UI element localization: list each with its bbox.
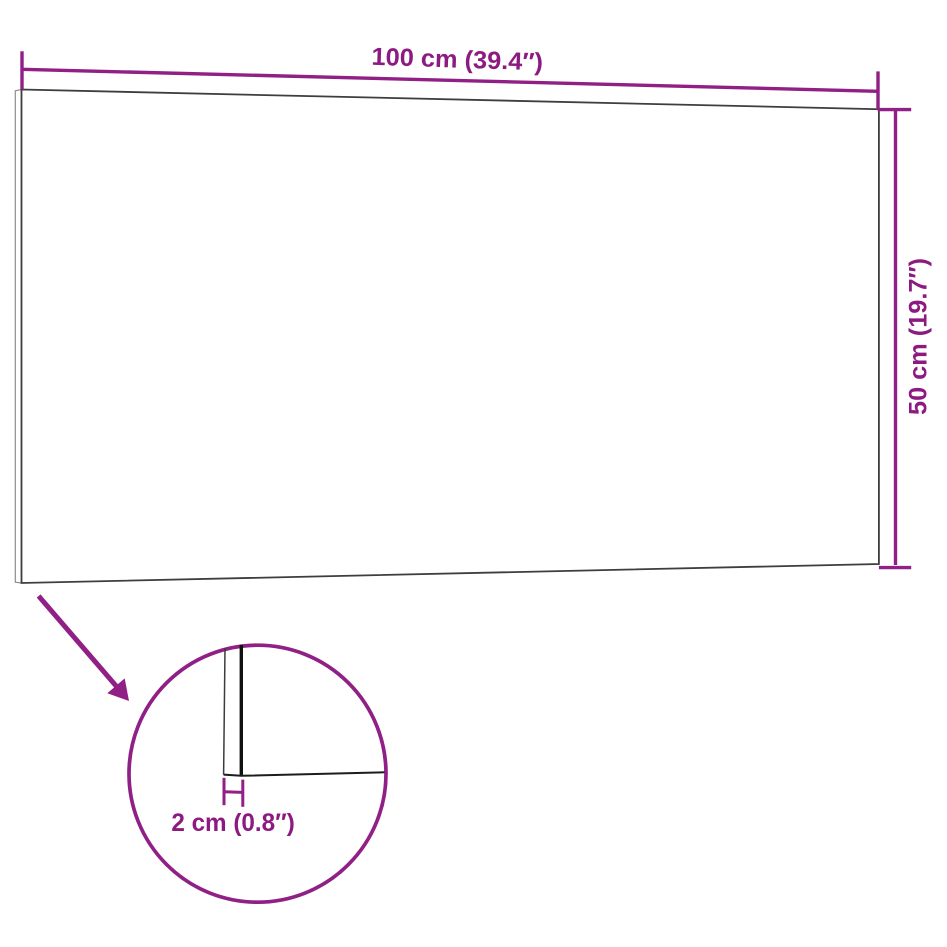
svg-text:2 cm (0.8″): 2 cm (0.8″)	[171, 810, 295, 837]
svg-text:100 cm (39.4″): 100 cm (39.4″)	[371, 44, 543, 77]
svg-text:50 cm (19.7″): 50 cm (19.7″)	[906, 258, 933, 415]
